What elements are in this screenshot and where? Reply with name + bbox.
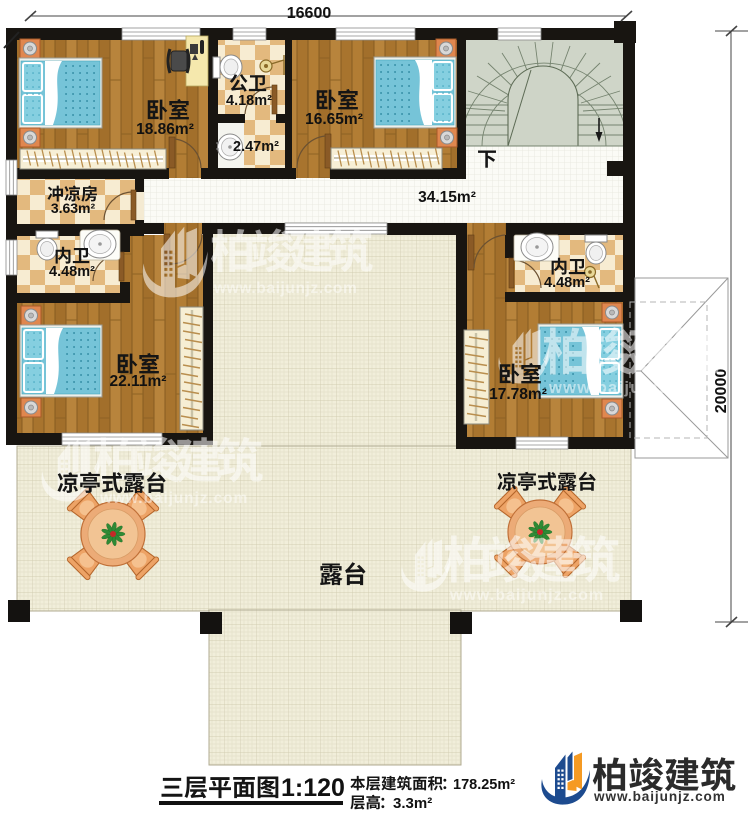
svg-text:www.baijunjz.com: www.baijunjz.com [449,587,604,604]
svg-text:16.65m²: 16.65m² [305,111,363,128]
svg-text:www.baijunjz.com: www.baijunjz.com [99,490,248,507]
svg-text:www.baijunjz.com: www.baijunjz.com [593,789,726,804]
svg-text:18.86m²: 18.86m² [136,121,194,138]
svg-text:4.18m²: 4.18m² [226,93,272,109]
svg-text:3.63m²: 3.63m² [51,200,96,216]
svg-text:1:120: 1:120 [281,774,345,802]
svg-text:2.47m²: 2.47m² [233,139,279,155]
svg-text:20000: 20000 [713,369,730,414]
svg-text:34.15m²: 34.15m² [418,189,476,206]
svg-text:22.11m²: 22.11m² [110,373,167,390]
svg-text:3.3m²: 3.3m² [393,795,432,812]
svg-text:178.25m²: 178.25m² [453,777,515,793]
svg-text:17.78m²: 17.78m² [489,386,547,403]
svg-text:www.baijunjz.com: www.baijunjz.com [548,379,712,397]
svg-text:4.48m²: 4.48m² [49,264,95,280]
svg-text:www.baijunjz.com: www.baijunjz.com [213,280,357,297]
svg-text:16600: 16600 [287,5,332,22]
svg-text:4.48m²: 4.48m² [544,275,590,291]
